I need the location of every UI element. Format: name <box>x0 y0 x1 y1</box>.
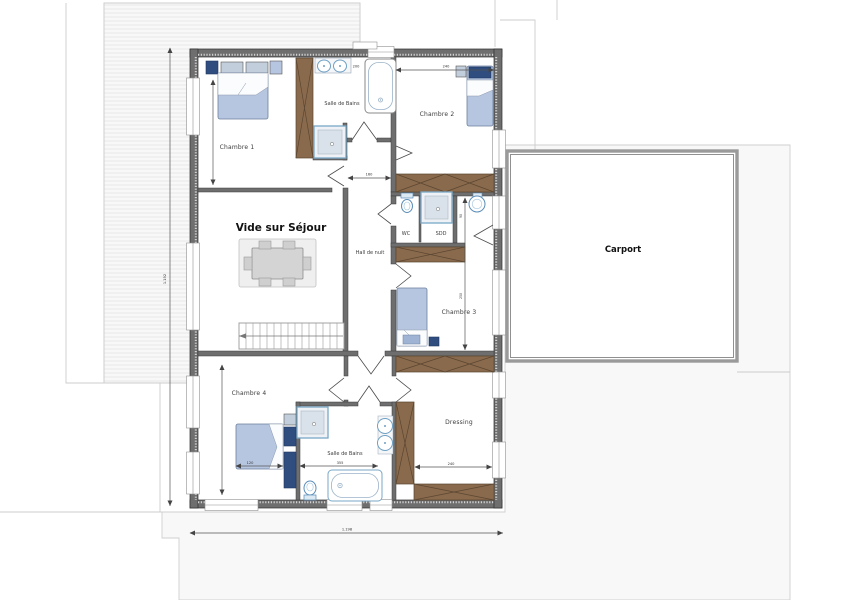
shower-bottom <box>297 407 328 438</box>
window-right-3 <box>493 270 506 335</box>
window-left-2 <box>187 243 200 330</box>
window-left-1 <box>187 78 200 135</box>
toilet-bottom <box>304 481 316 500</box>
room-label-bathroom-bottom: Salle de Bains <box>327 451 363 457</box>
room-label-void: Vide sur Séjour <box>236 222 327 234</box>
wardrobe-dressing-left <box>396 402 414 484</box>
room-label-chambre-3: Chambre 3 <box>442 309 477 316</box>
shower-sdd <box>421 192 452 223</box>
room-label-sdd: SDD <box>436 231 447 237</box>
shower-top <box>314 126 346 158</box>
floor-plan-drawing: Chambre 1 Salle de Bains Chambre 2 WC SD… <box>0 0 848 600</box>
bathtub-bottom <box>328 470 382 501</box>
carport-block <box>507 151 737 361</box>
window-right-1 <box>493 130 506 168</box>
wardrobe-hall <box>396 247 465 262</box>
double-sink-bottom <box>378 416 394 454</box>
room-label-bathroom-top: Salle de Bains <box>324 101 360 107</box>
dim-label-bed4: 120 <box>247 461 255 465</box>
window-right-2 <box>493 196 506 229</box>
dim-label-bathroom-bottom: 355 <box>337 461 344 465</box>
window-right-5 <box>493 442 506 478</box>
dim-label-nook: 90 <box>459 214 463 218</box>
window-right-4 <box>493 372 506 398</box>
dining-table <box>239 239 316 287</box>
dim-label-dressing: 240 <box>448 462 456 466</box>
floor-plan-page: Chambre 1 Salle de Bains Chambre 2 WC SD… <box>0 0 848 600</box>
room-label-chambre-1: Chambre 1 <box>220 144 255 151</box>
window-bottom-1 <box>205 500 258 511</box>
stairs <box>239 323 344 349</box>
wardrobe-chambre1 <box>296 58 313 158</box>
window-left-3 <box>187 376 200 428</box>
wardrobe-dressing-top <box>396 356 494 372</box>
dim-label-chambre3: 250 <box>459 293 463 299</box>
room-label-chambre-4: Chambre 4 <box>232 390 267 397</box>
room-label-chambre-2: Chambre 2 <box>420 111 455 118</box>
window-left-4 <box>187 452 200 494</box>
wardrobe-dressing-bottom <box>414 484 494 500</box>
room-label-dressing: Dressing <box>445 419 473 426</box>
toilet-wc <box>401 193 413 213</box>
bathtub-top <box>365 59 396 113</box>
room-label-hall: Hall de nuit <box>356 250 385 256</box>
dim-label-chambre2: 240 <box>443 65 451 69</box>
window-sill-top <box>353 42 377 49</box>
dim-label-hall: 160 <box>366 173 374 177</box>
room-label-carport: Carport <box>605 245 641 255</box>
dim-label-overall-height: 1.192 <box>163 274 167 284</box>
room-label-wc: WC <box>402 231 411 237</box>
wardrobe-chambre2 <box>396 174 494 192</box>
double-sink-top <box>315 58 351 73</box>
dim-label-overall-width: 1.198 <box>342 528 353 532</box>
dim-label-sinks: 200 <box>353 65 361 69</box>
